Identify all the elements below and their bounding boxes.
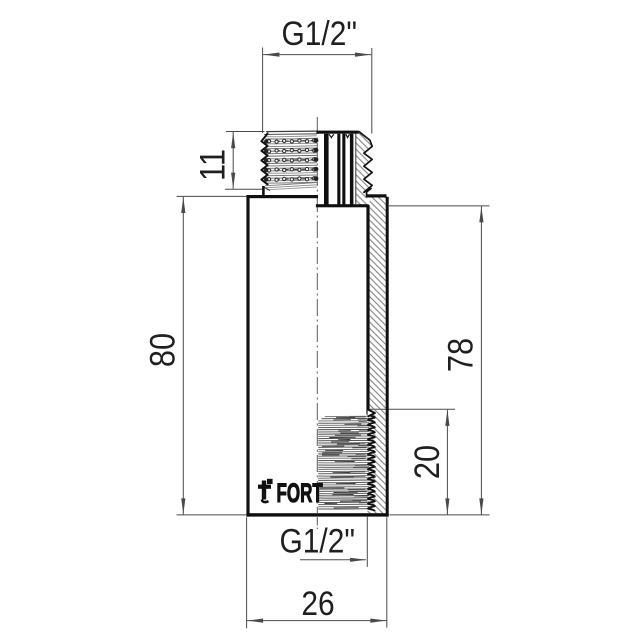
svg-text:20: 20 [407, 445, 446, 479]
svg-text:78: 78 [441, 338, 480, 372]
svg-text:80: 80 [143, 333, 182, 367]
svg-text:G1/2": G1/2" [280, 522, 355, 560]
svg-text:26: 26 [301, 584, 334, 622]
svg-text:G1/2": G1/2" [282, 14, 357, 52]
svg-text:FORT: FORT [277, 478, 323, 508]
svg-text:11: 11 [193, 149, 232, 181]
